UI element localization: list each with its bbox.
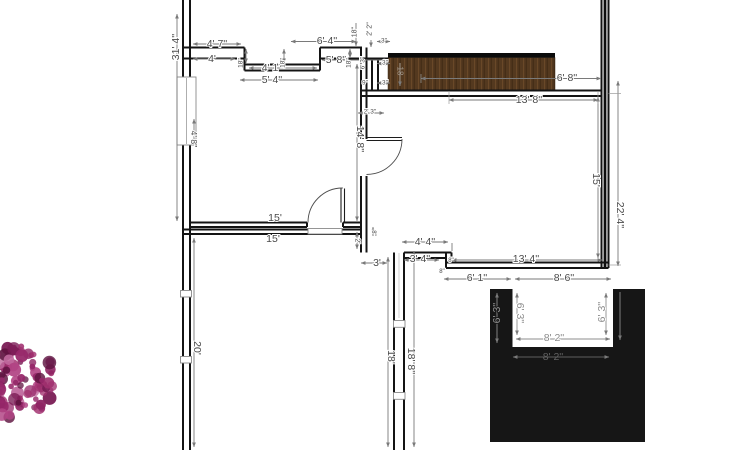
dimension-label: 18 — [396, 67, 405, 76]
dimension-label: 9'' — [362, 80, 368, 87]
wall-break-left-2 — [181, 357, 192, 364]
deck-top-edge — [388, 53, 555, 58]
dimension-label: 15' — [266, 233, 280, 245]
dimension-label: 31' 4'' — [170, 34, 182, 60]
dimension-label: 18'' — [352, 27, 359, 37]
flower-petal — [24, 390, 32, 398]
dimension-label: 8'' — [370, 230, 376, 236]
flower-petal — [43, 377, 54, 388]
dimension-label: 6' 4'' — [317, 35, 338, 47]
dimension-label: 6' 8'' — [557, 72, 578, 84]
wall-break-left-1 — [181, 291, 192, 298]
flower-petal — [15, 349, 28, 362]
dimension-label: 14' 8'' — [354, 126, 366, 152]
wall-break-middle-1 — [394, 321, 406, 328]
patio-black-area — [490, 289, 645, 442]
dimension-label: 6' 3'' — [491, 303, 503, 324]
dimension-label: 3' — [373, 257, 381, 269]
deck-wood — [388, 58, 555, 91]
flower-image — [0, 342, 57, 423]
dimension-label: 8' 2'' — [543, 351, 564, 363]
flower-petal — [23, 402, 29, 408]
flower-petal — [8, 384, 14, 390]
dimension-label: 22' 4'' — [614, 202, 626, 228]
dimension-label: 18' — [385, 350, 397, 364]
dimension-label: 5' 8'' — [326, 54, 347, 66]
flower-petal — [17, 374, 25, 382]
openings — [177, 77, 405, 399]
dimension-label: 3'' — [382, 60, 388, 67]
wall-break-middle-2 — [394, 393, 406, 400]
dimension-label: 18'' — [346, 58, 353, 68]
flower-petal — [16, 400, 22, 406]
dimension-label: 3' 4'' — [410, 253, 431, 265]
deck-bottom-wall — [361, 91, 602, 97]
dimension-label: 4' 4'' — [415, 236, 436, 248]
dimension-label: 2' 3'' — [364, 109, 377, 116]
dimension-label: 5' 4'' — [262, 74, 283, 86]
flower-petal — [34, 383, 42, 391]
dimension-label: 4' 7'' — [207, 38, 228, 50]
door-leaf-1 — [341, 189, 345, 223]
dimension-label: 15' — [268, 212, 282, 224]
door-threshold — [308, 229, 342, 235]
stairs-deck — [388, 53, 555, 91]
dimension-label: 18'' — [238, 58, 245, 68]
dimension-label: 8'' — [439, 269, 445, 275]
dimension-label: 6' 3'' — [360, 57, 367, 70]
floor-plan-drawing: 31' 4''4' 7''4'6' 4''5' 8''4' 1''5' 4''1… — [0, 0, 750, 450]
flower-petal — [31, 352, 37, 358]
dimension-label: 3'' — [381, 38, 387, 45]
flower-petal — [18, 344, 24, 350]
dimension-label: 8' 6'' — [554, 272, 575, 284]
dimension-label: 6' 3'' — [514, 303, 526, 324]
flower-petal — [30, 364, 36, 370]
flower-petal — [13, 380, 18, 385]
dimension-label: 18' 8'' — [405, 348, 417, 374]
dimension-label: 2' — [354, 238, 361, 243]
left-exterior-wall — [183, 0, 190, 450]
dimension-label: 4' — [208, 53, 216, 65]
dimension-label: 18'' — [280, 58, 287, 68]
dimension-label: 8'' — [448, 258, 454, 264]
door-leaf-2 — [367, 138, 403, 141]
dimension-label: 8' 2'' — [544, 332, 565, 344]
flower-petal — [39, 378, 44, 383]
door-swing-arc-2 — [367, 139, 403, 175]
dimension-label: 6' 1'' — [467, 272, 488, 284]
dimension-label: 3'' — [382, 80, 388, 87]
dimension-label: 2' 2'' — [367, 22, 374, 36]
dimension-label: 13' 4'' — [513, 253, 539, 265]
dimension-label: 20' — [191, 341, 203, 355]
flower-petal — [43, 356, 57, 370]
floor-plan-canvas: 31' 4''4' 7''4'6' 4''5' 8''4' 1''5' 4''1… — [0, 0, 750, 450]
flower-petal — [36, 400, 46, 410]
dimension-label: 6' 3'' — [596, 302, 608, 323]
flower-petal — [0, 383, 6, 396]
dimension-label: 4' 8'' — [189, 131, 199, 148]
dimension-label: 13' 8'' — [516, 94, 542, 106]
door-swing-arc-1 — [308, 188, 343, 223]
dimension-label: 15' — [590, 173, 602, 187]
